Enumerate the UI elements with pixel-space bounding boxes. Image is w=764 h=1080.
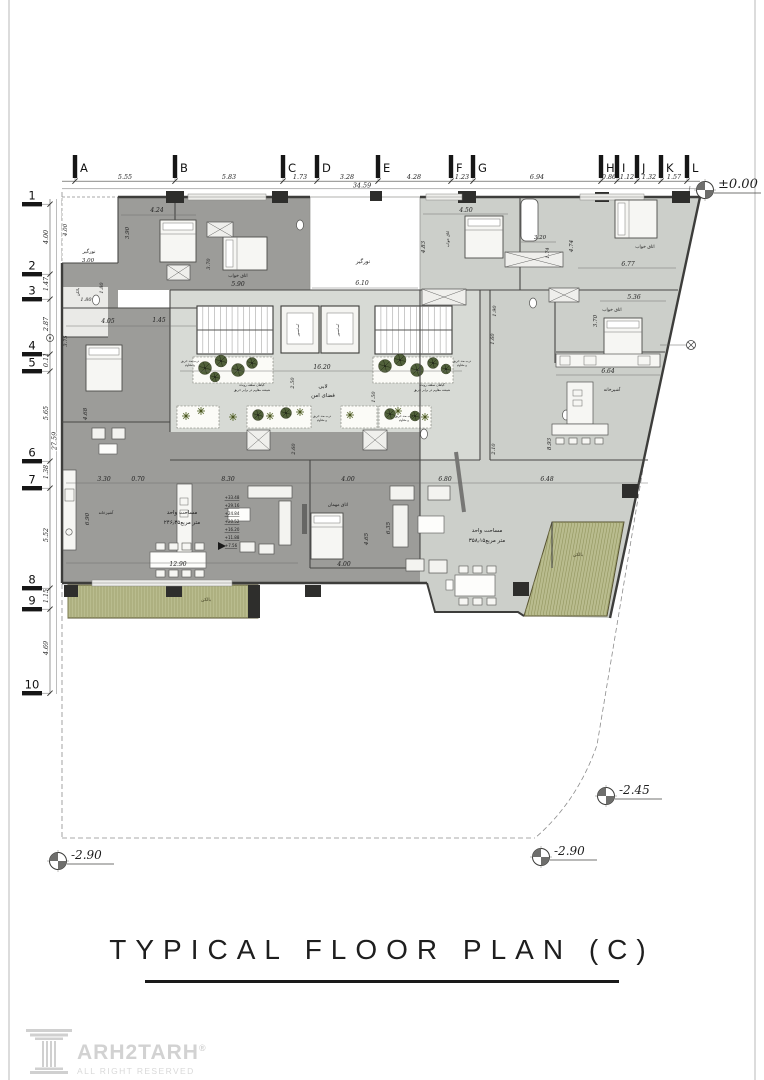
svg-text:-2.90: -2.90: [71, 848, 102, 862]
svg-text:D: D: [322, 161, 331, 175]
svg-text:4: 4: [28, 339, 35, 353]
svg-text:1.32: 1.32: [642, 173, 656, 181]
svg-text:6.94: 6.94: [530, 173, 544, 181]
title-underline: [145, 980, 619, 983]
svg-text:6.48: 6.48: [540, 476, 554, 483]
svg-text:4.69: 4.69: [42, 641, 50, 656]
svg-text:6.80: 6.80: [438, 476, 452, 483]
svg-text:مساحت واحد: مساحت واحد: [472, 528, 503, 534]
svg-text:1.45: 1.45: [152, 317, 166, 324]
svg-text:8: 8: [28, 573, 35, 587]
svg-text:1.23: 1.23: [455, 173, 469, 181]
svg-text:6.10: 6.10: [355, 280, 369, 287]
svg-text:اتاق مهمان: اتاق مهمان: [328, 503, 349, 508]
brand-logo: ARH2TARH® ALL RIGHT RESERVED: [26, 1022, 207, 1076]
svg-text:5: 5: [28, 356, 35, 370]
svg-text:+24.84: +24.84: [225, 511, 240, 516]
svg-text:34.59: 34.59: [353, 181, 371, 189]
svg-text:نورگیر: نورگیر: [355, 258, 371, 265]
svg-text:1.57: 1.57: [667, 173, 682, 181]
plan-title: TYPICAL FLOOR PLAN (C): [0, 934, 764, 966]
svg-text:8.30: 8.30: [221, 476, 235, 483]
svg-text:۲۴۶٫۳۵متر مربع: ۲۴۶٫۳۵متر مربع: [164, 520, 200, 526]
svg-text:±0.00: ±0.00: [718, 177, 758, 192]
svg-text:7: 7: [28, 473, 35, 487]
logo-text: ARH2TARH® ALL RIGHT RESERVED: [77, 1042, 207, 1076]
svg-text:بالکن: بالکن: [75, 288, 80, 296]
svg-text:5.52: 5.52: [42, 528, 50, 542]
svg-text:5.90: 5.90: [231, 281, 245, 288]
svg-text:+20.52: +20.52: [225, 519, 240, 524]
svg-text:3.70: 3.70: [593, 314, 599, 327]
svg-text:4.00: 4.00: [340, 476, 355, 483]
svg-text:+29.16: +29.16: [225, 503, 240, 508]
svg-text:گیاهان سقف رونده: گیاهان سقف رونده: [419, 383, 445, 387]
svg-text:4.68: 4.68: [83, 407, 89, 421]
svg-text:3.30: 3.30: [97, 476, 111, 483]
svg-text:4.74: 4.74: [569, 239, 575, 253]
svg-text:3.20: 3.20: [534, 235, 547, 241]
svg-text:اتاق خواب: اتاق خواب: [228, 274, 247, 279]
svg-text:1.47: 1.47: [42, 276, 50, 291]
svg-text:6.64: 6.64: [601, 368, 615, 375]
svg-text:آشپزخانه: آشپزخانه: [99, 510, 115, 515]
svg-text:1.50: 1.50: [371, 391, 377, 403]
svg-text:4.50: 4.50: [458, 207, 473, 214]
svg-text:1.60: 1.60: [490, 333, 496, 345]
svg-text:2.60: 2.60: [291, 443, 297, 456]
svg-text:1.15: 1.15: [42, 589, 50, 603]
svg-text:3.00: 3.00: [82, 258, 95, 264]
svg-text:بالکن: بالکن: [573, 552, 583, 558]
svg-text:9: 9: [28, 594, 35, 608]
svg-text:+7.56: +7.56: [225, 543, 238, 548]
svg-text:آسانسور: آسانسور: [296, 323, 300, 338]
svg-text:3.28: 3.28: [340, 173, 354, 181]
svg-text:10: 10: [25, 678, 40, 692]
svg-text:L: L: [692, 161, 699, 175]
svg-text:1.38: 1.38: [42, 465, 50, 479]
svg-text:12.90: 12.90: [169, 561, 186, 568]
svg-text:-2.45: -2.45: [619, 783, 650, 797]
svg-text:1.12: 1.12: [620, 173, 634, 181]
svg-text:0.70: 0.70: [131, 476, 145, 483]
brand-name: ARH2TARH®: [77, 1042, 207, 1063]
svg-text:بالکن: بالکن: [201, 597, 211, 603]
floor-plan-drawing: ABCDEFGHIJKL5.555.831.733.284.281.236.94…: [0, 0, 764, 1080]
svg-text:نورگیر: نورگیر: [81, 248, 95, 255]
svg-text:1.73: 1.73: [293, 173, 307, 181]
svg-text:3: 3: [28, 284, 35, 298]
registered-mark: ®: [199, 1043, 207, 1053]
svg-text:1.80: 1.80: [80, 297, 92, 303]
svg-text:E: E: [383, 161, 390, 175]
brand-tagline: ALL RIGHT RESERVED: [77, 1066, 207, 1076]
svg-text:5.55: 5.55: [118, 173, 132, 181]
svg-text:+11.88: +11.88: [225, 535, 240, 540]
svg-text:1.74: 1.74: [545, 247, 551, 258]
svg-text:آسانسور: آسانسور: [336, 323, 340, 338]
svg-text:2: 2: [28, 259, 35, 273]
svg-text:8.93: 8.93: [547, 437, 553, 450]
svg-text:اتاق خواب: اتاق خواب: [445, 231, 450, 247]
svg-text:A: A: [80, 161, 88, 175]
svg-text:3.90: 3.90: [125, 226, 131, 239]
svg-text:4.00: 4.00: [63, 223, 69, 237]
drawing-sheet: ABCDEFGHIJKL5.555.831.733.284.281.236.94…: [0, 0, 764, 1080]
svg-text:۳۵۸٫۱۵متر مربع: ۳۵۸٫۱۵متر مربع: [469, 538, 505, 544]
svg-text:0.11: 0.11: [42, 353, 50, 367]
svg-text:+33.48: +33.48: [225, 495, 240, 500]
svg-text:4.83: 4.83: [421, 240, 427, 254]
svg-text:6.35: 6.35: [386, 521, 392, 534]
svg-text:B: B: [180, 161, 188, 175]
svg-text:3.70: 3.70: [206, 258, 212, 270]
svg-text:5.65: 5.65: [42, 406, 50, 420]
svg-text:آشپزخانه: آشپزخانه: [604, 387, 621, 393]
svg-text:4.05: 4.05: [100, 318, 115, 325]
svg-text:1.80: 1.80: [99, 282, 105, 294]
svg-text:2.87: 2.87: [42, 316, 50, 332]
svg-text:4.28: 4.28: [406, 173, 421, 181]
svg-text:4.65: 4.65: [364, 532, 370, 546]
svg-text:0.86: 0.86: [602, 173, 616, 181]
svg-text:4.24: 4.24: [149, 207, 164, 214]
svg-text:2.50: 2.50: [290, 377, 296, 390]
column-logo-icon: [26, 1022, 72, 1076]
svg-text:+16.20: +16.20: [225, 527, 240, 532]
svg-text:3.75: 3.75: [63, 335, 69, 346]
svg-text:1.90: 1.90: [492, 305, 498, 317]
svg-text:لابی: لابی: [318, 384, 327, 390]
svg-text:1: 1: [28, 189, 35, 203]
svg-text:G: G: [478, 161, 487, 175]
svg-text:16.20: 16.20: [313, 364, 330, 371]
svg-text:مساحت واحد: مساحت واحد: [167, 510, 198, 516]
svg-text:6: 6: [28, 446, 35, 460]
title-block: TYPICAL FLOOR PLAN (C): [0, 934, 764, 983]
svg-text:5.36: 5.36: [627, 294, 641, 301]
svg-text:5.83: 5.83: [222, 173, 236, 181]
svg-text:6.77: 6.77: [621, 261, 635, 268]
svg-text:4.00: 4.00: [336, 561, 351, 568]
svg-text:اتاق خواب: اتاق خواب: [635, 245, 654, 250]
svg-text:اتاق خواب: اتاق خواب: [602, 308, 621, 313]
svg-text:فضای امن: فضای امن: [311, 393, 335, 399]
svg-text:6.90: 6.90: [85, 512, 91, 525]
svg-text:گیاهان سقف رونده: گیاهان سقف رونده: [239, 383, 265, 387]
svg-text:-2.90: -2.90: [554, 844, 585, 858]
svg-text:27.59: 27.59: [50, 432, 58, 451]
svg-text:4.00: 4.00: [42, 230, 50, 245]
svg-text:2.10: 2.10: [491, 443, 497, 456]
